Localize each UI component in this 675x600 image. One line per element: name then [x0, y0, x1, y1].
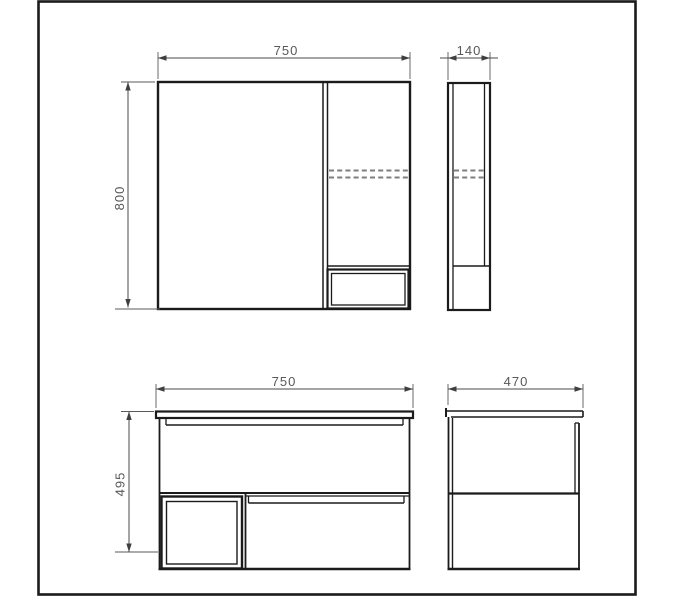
arrowhead-right — [482, 55, 491, 60]
mirror-front-outline — [158, 82, 410, 309]
dimension-vanity-depth: 470 — [448, 374, 583, 408]
dimension-mirror-height: 800 — [112, 82, 160, 309]
arrowhead-right — [402, 55, 411, 60]
arrowhead-top — [126, 412, 131, 421]
open-niche-outer — [162, 497, 243, 569]
arrowhead-right — [575, 386, 584, 391]
vanity-side-view: 470 — [446, 374, 583, 569]
arrowhead-left — [448, 386, 457, 391]
dimension-value: 750 — [274, 43, 299, 58]
dimension-value: 800 — [112, 186, 127, 211]
dimension-mirror-width: 750 — [158, 43, 410, 79]
dimension-mirror-depth: 140 — [440, 43, 498, 80]
arrowhead-left — [156, 386, 165, 391]
arrowhead-bottom — [126, 544, 131, 553]
arrowhead-top — [125, 82, 130, 91]
countertop — [156, 412, 413, 419]
arrowhead-right — [405, 386, 414, 391]
open-niche-outer — [328, 270, 409, 309]
dimension-value: 140 — [457, 43, 482, 58]
mirror-side-outline — [448, 83, 490, 310]
drawing-sheet: 750 800 140 — [0, 0, 675, 600]
open-niche-inner — [167, 502, 238, 565]
dimension-value: 750 — [272, 374, 297, 389]
arrowhead-left — [448, 55, 457, 60]
dimension-value: 495 — [113, 472, 128, 497]
arrowhead-bottom — [125, 299, 130, 308]
arrowhead-left — [158, 55, 167, 60]
dimension-vanity-width: 750 — [156, 374, 413, 408]
dimension-value: 470 — [504, 374, 529, 389]
open-niche-inner — [332, 274, 406, 306]
dimension-vanity-height: 495 — [113, 412, 159, 553]
mirror-front-view: 750 800 — [112, 43, 410, 309]
vanity-front-view: 750 495 — [113, 374, 414, 569]
mirror-side-view: 140 — [440, 43, 498, 310]
technical-drawing-canvas: 750 800 140 — [0, 0, 675, 600]
